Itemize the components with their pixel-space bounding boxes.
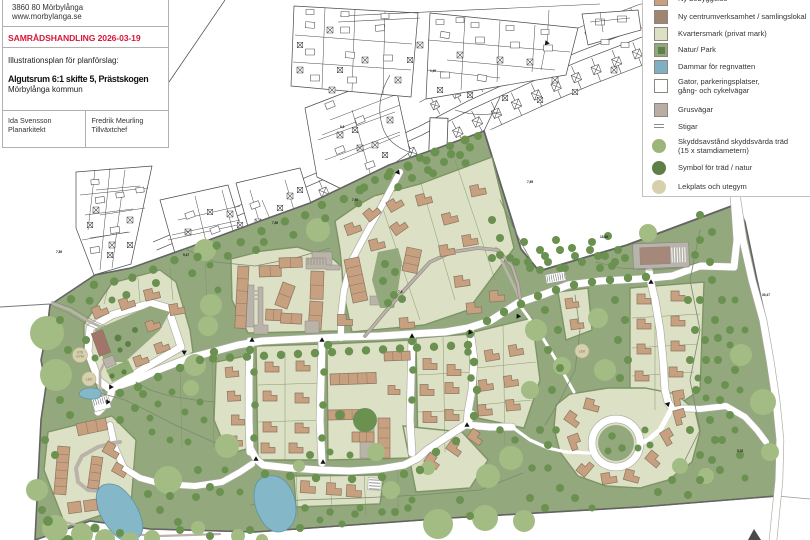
svg-text:8,6: 8,6 bbox=[340, 125, 345, 129]
svg-text:7,89: 7,89 bbox=[56, 250, 62, 254]
svg-text:1,40: 1,40 bbox=[430, 69, 436, 73]
svg-text:5,76: 5,76 bbox=[737, 449, 743, 453]
svg-text:18,86: 18,86 bbox=[600, 235, 608, 239]
svg-text:7,8: 7,8 bbox=[398, 290, 403, 294]
svg-text:LEK: LEK bbox=[86, 378, 93, 382]
svg-text:LEK: LEK bbox=[579, 350, 586, 354]
svg-text:7,89: 7,89 bbox=[527, 180, 533, 184]
svg-text:5,47: 5,47 bbox=[183, 253, 189, 257]
svg-text:7,89: 7,89 bbox=[272, 221, 278, 225]
svg-text:GYM: GYM bbox=[76, 355, 84, 359]
svg-text:30,47: 30,47 bbox=[762, 293, 770, 297]
svg-text:7,90: 7,90 bbox=[352, 198, 358, 202]
